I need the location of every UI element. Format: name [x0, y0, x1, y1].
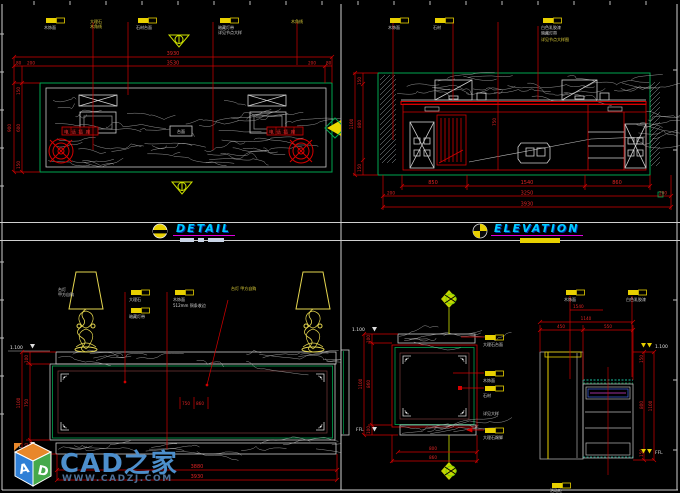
tag-caption: 木饰面 [564, 296, 576, 302]
tag-caption: 木饰面 [483, 377, 495, 383]
tag-caption: 详见大样 [483, 410, 499, 416]
tag-caption: 甲方自购 [58, 291, 74, 297]
level-text: FFL [356, 427, 364, 433]
elevation-title-underline [491, 235, 583, 236]
level-text: FFL [655, 450, 663, 456]
dim-q1-l2: 200 [27, 61, 35, 66]
level-marker-right-top: 1.100 [641, 343, 668, 350]
end-section [392, 334, 477, 435]
dim-q2-b2: 1540 [521, 180, 534, 186]
right-xbox [625, 124, 646, 168]
tag-caption: 木角线 [291, 18, 303, 24]
right-cabinet [588, 104, 624, 170]
level-marker-left-top: 1.100 [352, 327, 377, 333]
dim-q2-vt: 1100 [349, 118, 354, 129]
dim-q1-v1: 150 [16, 87, 21, 95]
counter-front [50, 352, 336, 454]
tag-caption: 木角线 [90, 23, 102, 29]
elevation-title-icon [470, 222, 490, 240]
section-views: 1.100 FFL 1100 100 860 100 800 860 大理石台面… [341, 247, 680, 493]
tag-caption: 木饰面 [173, 296, 185, 302]
dim-q2-b1: 850 [428, 180, 438, 186]
tag-caption: 详见节点大样 [218, 29, 242, 35]
dim-q1-total: 3930 [167, 51, 180, 57]
tag-caption: 白色乳胶漆 [541, 24, 561, 30]
tag-caption: 台灯 甲方自购 [231, 285, 256, 291]
corner-brackets [403, 356, 466, 416]
elevation-view: 850 1540 860 200 3250 200 3930 1100 150 … [341, 0, 680, 247]
table-lamp-right [296, 272, 330, 352]
dim-q1-r1: 200 [308, 61, 316, 66]
slat-panel [437, 115, 466, 165]
tag-caption: 木饰面 [388, 24, 400, 30]
finish-tag-bottom: 活动柜 [550, 483, 571, 493]
dimension-lines-left [362, 332, 479, 463]
dimension-lines-right [538, 296, 656, 462]
tag-caption: 石材 [483, 392, 491, 398]
dim-q3-v2: 750 [24, 399, 29, 407]
tag-caption: 白色乳胶漆 [626, 296, 646, 302]
dim-q4-t1: 450 [557, 324, 565, 329]
dim-q2-v1: 150 [357, 77, 362, 85]
label-box-left-text: 电话插座 [64, 129, 93, 136]
tag-caption: 石材 [433, 24, 441, 30]
dim-q3-vt: 1100 [16, 397, 21, 408]
dim-q1-l1: 80 [16, 61, 22, 66]
finish-tags: 木饰面 石材 白色乳胶漆 暗藏灯带 详见节点大样图 [388, 18, 569, 42]
detail-diamond-bottom-icon [441, 435, 457, 480]
dim-q2-t1: 3250 [521, 191, 534, 197]
cad-drawing-canvas: 电话插座 电话插座 台面 3930 3530 80 200 200 80 900… [0, 0, 680, 493]
monitors [435, 80, 609, 100]
cadzj-logo[interactable]: A D CAD之家 WWW.CADZJ.COM [10, 441, 240, 491]
center-console [518, 143, 550, 163]
dim-q2-v3: 150 [357, 164, 362, 172]
dim-q2-br: 200 [659, 191, 667, 196]
dim-q4-lv1: 100 [366, 335, 371, 343]
label-box-left: 电话插座 [62, 127, 98, 136]
dim-q3-m1: 750 [182, 401, 190, 406]
elevation-title: ELEVATION [494, 222, 579, 235]
dim-q4-c1: 1540 [573, 304, 584, 309]
level-marker-top: 1.100 [8, 344, 50, 351]
dim-q4-rv2: 800 [639, 401, 644, 409]
dim-q1-r2: 80 [326, 61, 332, 66]
tag-caption: 木饰面 [44, 24, 56, 30]
tag-caption: 大理石 [129, 296, 141, 302]
dim-q2-b3: 860 [612, 180, 622, 186]
dim-q4-rv1: 150 [639, 355, 644, 363]
center-label-text: 台面 [177, 128, 185, 134]
center-label-box: 台面 [170, 126, 192, 136]
dim-q2-v2: 800 [357, 120, 362, 128]
dimension-lines [353, 22, 673, 210]
dim-q4-t2: 550 [604, 324, 612, 329]
dim-q1-v2: 600 [16, 124, 21, 132]
dim-q3-m2: 860 [196, 401, 204, 406]
elevation-scale-box [520, 238, 560, 243]
section-marker-bottom-icon [172, 182, 192, 194]
detail-title-underline [173, 235, 235, 236]
dim-q4-lv3: 100 [366, 426, 371, 434]
q3-endcap [341, 350, 349, 435]
detail-diamond-top-icon [441, 290, 457, 334]
detail-title-icon [150, 222, 170, 240]
tag-caption: 大理石踢脚 [483, 434, 503, 440]
dim-q4-lv2: 860 [366, 380, 371, 388]
rosette-left [49, 139, 73, 163]
detail-scale-box [208, 238, 224, 242]
desk-structure [401, 100, 646, 170]
plan-detail-view: 电话插座 电话插座 台面 3930 3530 80 200 200 80 900… [0, 0, 341, 247]
label-box-right: 电话插座 [267, 127, 303, 136]
dim-q4-rvt: 1100 [648, 400, 653, 411]
detail-title: DETAIL [176, 222, 231, 235]
logo-site-url[interactable]: WWW.CADZJ.COM [62, 474, 173, 484]
marble-wall [397, 72, 680, 105]
level-text: 1.100 [655, 344, 668, 350]
tag-caption: 暗藏灯带 [541, 30, 557, 36]
dim-q2-bl: 200 [387, 191, 395, 196]
table-lamp-left [69, 272, 103, 352]
tag-caption: 石材台面 [136, 24, 152, 30]
dim-q1-v3: 150 [16, 161, 21, 169]
finish-tags-top: 木饰面 白色乳胶漆 [564, 290, 647, 302]
side-section [540, 352, 633, 475]
tag-caption: 详见节点大样图 [541, 36, 569, 42]
elevation-outline [378, 73, 650, 175]
label-box-right-text: 电话插座 [269, 129, 298, 136]
wall-hatch-left [380, 75, 396, 163]
dim-q1-vt: 900 [7, 124, 12, 132]
level-text: 1.100 [352, 327, 365, 333]
dim-q4-tt: 1140 [581, 316, 592, 321]
detail-scale-box [198, 238, 204, 242]
tag-caption: 512mm 铜条收边 [173, 302, 206, 308]
finish-tags: 木饰面 大理石 木角线 石材台面 暗藏灯带 详见节点大样 木角线 [44, 18, 303, 35]
dim-q4-lvt: 1100 [358, 378, 363, 389]
tag-caption: 活动柜 [550, 487, 562, 493]
corner-brackets [61, 374, 324, 430]
finish-tags: 台灯 甲方自购 大理石 木饰面 512mm 铜条收边 暗藏灯带 台灯 甲方自购 [58, 285, 256, 319]
rosette-right [289, 139, 313, 163]
tag-caption: 暗藏灯带 [129, 313, 145, 319]
detail-scale-box [180, 238, 194, 242]
dim-q2-c1: 750 [492, 118, 497, 126]
dim-q2-t2: 3930 [521, 202, 534, 208]
leader-dot [458, 386, 462, 390]
tag-caption: 大理石台面 [483, 341, 503, 347]
dim-q4-b2: 860 [429, 455, 437, 460]
cadzj-cube-icon[interactable]: A D [10, 441, 56, 489]
level-top-text: 1.100 [10, 345, 23, 351]
dim-q3-v1: 100 [24, 355, 29, 363]
elevation-arrow-icon [325, 118, 341, 138]
dim-q1-inner: 3530 [167, 61, 180, 67]
section-marker-top-icon [169, 35, 189, 47]
dim-q4-b1: 800 [429, 446, 437, 451]
